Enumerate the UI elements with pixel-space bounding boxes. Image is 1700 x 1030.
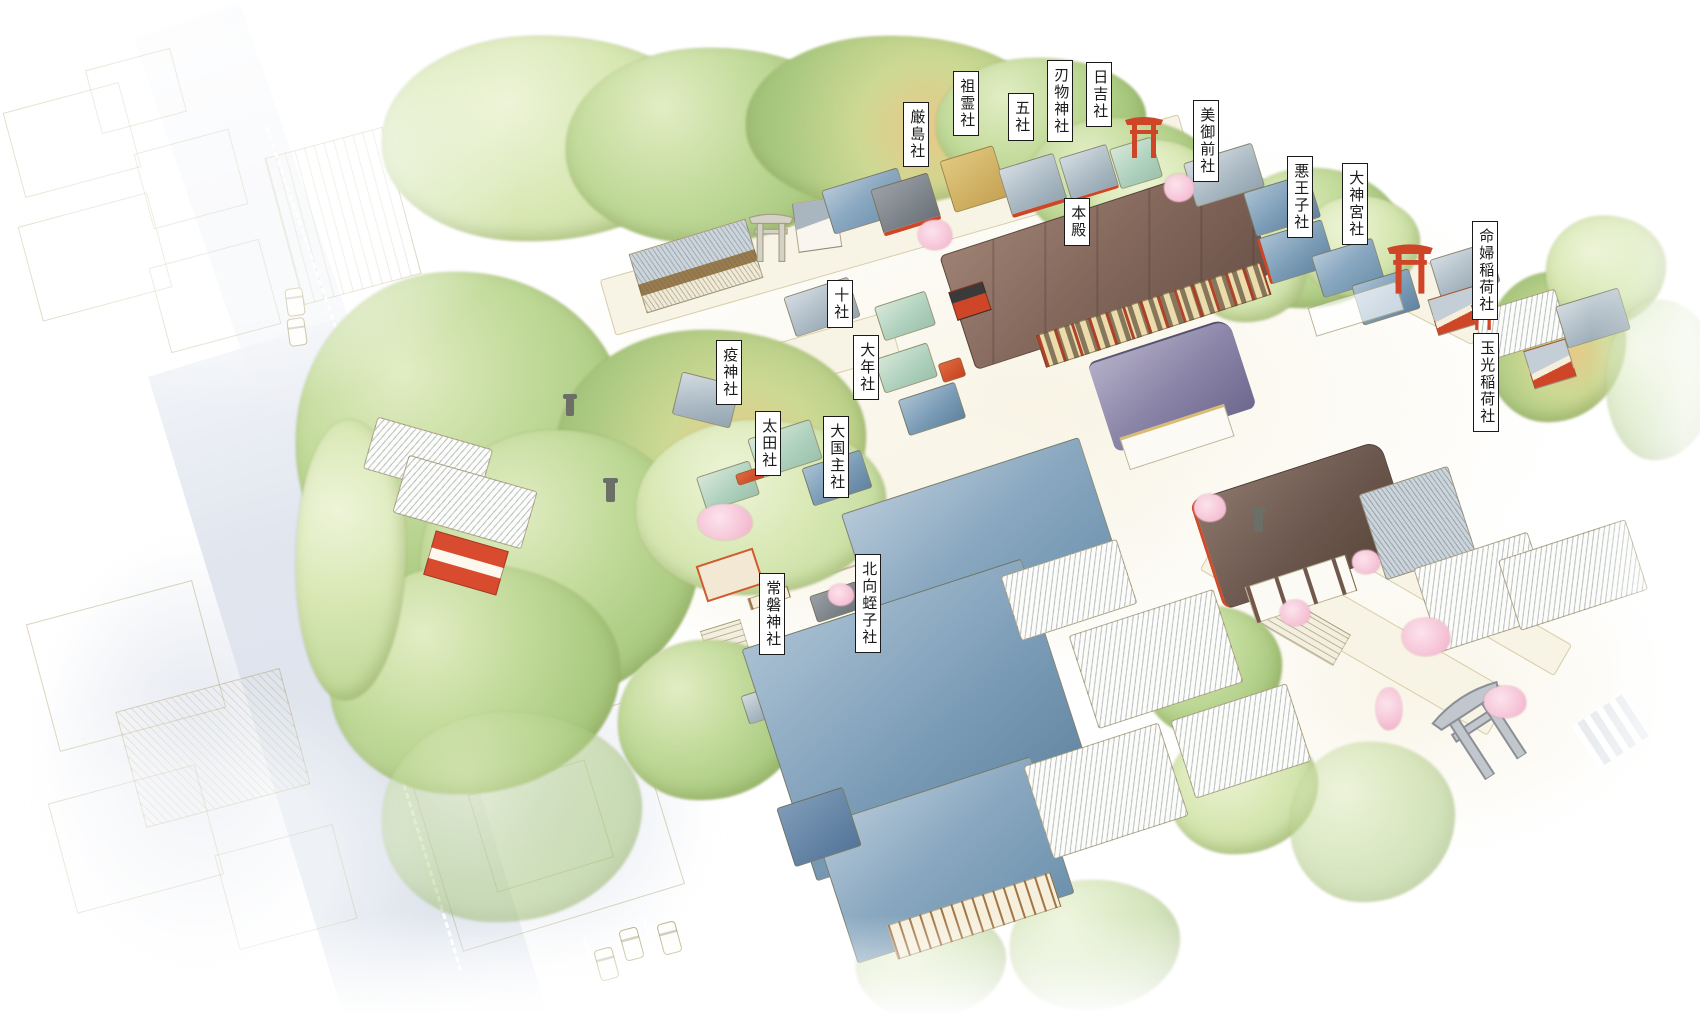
right-fade	[1590, 0, 1700, 1030]
stone-torii-icon	[748, 208, 794, 262]
label-ota-sha: 太田社	[755, 411, 781, 476]
label-kitamuki-ebisu-sha: 北向蛭子社	[855, 554, 881, 653]
car	[284, 287, 306, 317]
city-building-outline	[18, 192, 173, 321]
sakura-tree	[828, 584, 854, 606]
top-right-fade	[1250, 0, 1700, 160]
label-tokiwa-jinja: 常磐神社	[759, 573, 785, 655]
label-ekijinja: 疫神社	[716, 340, 742, 405]
sakura-tree	[1280, 600, 1310, 626]
label-otoshi-sha: 大年社	[853, 335, 879, 400]
label-akuoji-sha: 悪王子社	[1287, 156, 1313, 238]
sakura-tree	[1484, 686, 1526, 718]
label-tamamitsu-inari-sha: 玉光稲荷社	[1473, 333, 1499, 432]
map-canvas: 厳島社 祖霊社 五社 刃物神社 日吉社 美御前社 悪王子社 大神宮社 本殿 命婦…	[0, 0, 1700, 1030]
sakura-tree	[1402, 618, 1450, 656]
stone-lantern	[606, 482, 615, 502]
label-daijingu-sha: 大神宮社	[1342, 163, 1368, 245]
label-hamono-jinja: 刃物神社	[1047, 60, 1073, 142]
torii-gate-icon	[1124, 110, 1164, 160]
label-honden: 本殿	[1064, 198, 1090, 246]
torii-gate-icon	[1386, 236, 1434, 296]
label-utsukushi-gozen-sha: 美御前社	[1193, 100, 1219, 182]
car	[656, 920, 683, 956]
stone-lantern	[566, 398, 574, 416]
sakura-tree	[1194, 494, 1226, 522]
label-myobu-inari-sha: 命婦稲荷社	[1472, 221, 1498, 320]
city-building-outline	[3, 82, 142, 198]
sakura-tree	[1352, 550, 1380, 574]
sakura-tree	[698, 504, 752, 540]
label-soreisha: 祖霊社	[953, 71, 979, 136]
label-okuninushi-sha: 大国主社	[823, 416, 849, 498]
car	[286, 317, 308, 347]
label-jissha: 十社	[827, 280, 853, 328]
label-hiyoshi-sha: 日吉社	[1086, 62, 1112, 127]
label-gosha: 五社	[1008, 93, 1034, 141]
sakura-tree	[918, 220, 952, 250]
stone-lantern	[1254, 512, 1263, 532]
label-itsukushima-sha: 厳島社	[903, 102, 929, 167]
sakura-tree	[1376, 688, 1402, 730]
tree-cluster	[1290, 742, 1455, 902]
sakura-tree	[1164, 174, 1194, 202]
